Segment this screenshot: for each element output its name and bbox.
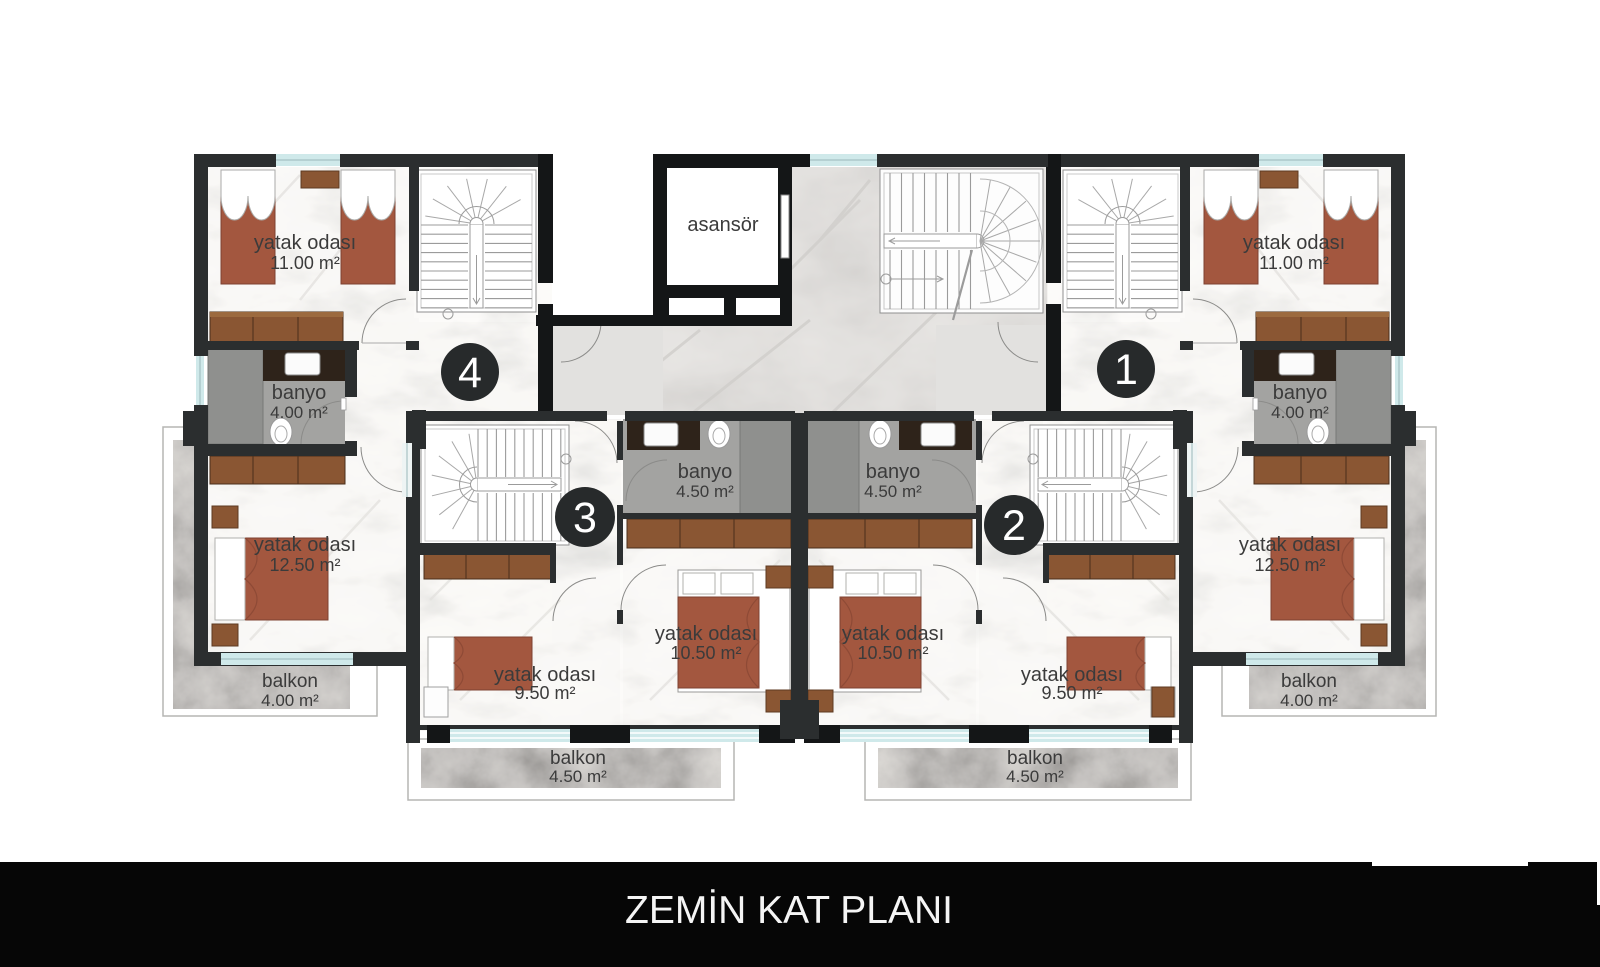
svg-text:10.50 m²: 10.50 m² <box>670 643 741 663</box>
svg-text:12.50 m²: 12.50 m² <box>269 555 340 575</box>
svg-text:4.50 m²: 4.50 m² <box>864 482 922 501</box>
svg-text:balkon: balkon <box>262 671 318 692</box>
svg-text:4.00 m²: 4.00 m² <box>270 403 328 422</box>
svg-text:balkon: balkon <box>1281 671 1337 692</box>
svg-text:banyo: banyo <box>678 461 733 483</box>
svg-text:yatak odası: yatak odası <box>842 623 944 645</box>
svg-text:9.50 m²: 9.50 m² <box>514 683 575 703</box>
svg-text:yatak odası: yatak odası <box>254 232 356 254</box>
svg-text:3: 3 <box>573 494 597 542</box>
svg-text:4: 4 <box>458 349 482 397</box>
svg-text:balkon: balkon <box>550 748 606 769</box>
svg-text:banyo: banyo <box>866 461 921 483</box>
svg-text:4.00 m²: 4.00 m² <box>1271 403 1329 422</box>
svg-text:11.00 m²: 11.00 m² <box>1259 253 1329 273</box>
svg-text:4.50 m²: 4.50 m² <box>549 767 607 786</box>
svg-text:11.00 m²: 11.00 m² <box>270 253 340 273</box>
svg-text:yatak odası: yatak odası <box>1239 534 1341 556</box>
svg-text:yatak odası: yatak odası <box>1243 232 1345 254</box>
svg-text:4.00 m²: 4.00 m² <box>1280 691 1338 710</box>
svg-text:banyo: banyo <box>272 382 327 404</box>
svg-text:12.50 m²: 12.50 m² <box>1254 555 1325 575</box>
svg-text:4.00 m²: 4.00 m² <box>261 691 319 710</box>
svg-text:2: 2 <box>1002 502 1026 550</box>
svg-text:yatak odası: yatak odası <box>254 534 356 556</box>
svg-text:balkon: balkon <box>1007 748 1063 769</box>
svg-text:10.50 m²: 10.50 m² <box>857 643 928 663</box>
svg-text:ZEMİN KAT PLANI: ZEMİN KAT PLANI <box>625 889 953 932</box>
svg-text:4.50 m²: 4.50 m² <box>1006 767 1064 786</box>
svg-text:asansör: asansör <box>687 214 758 236</box>
svg-text:4.50 m²: 4.50 m² <box>676 482 734 501</box>
svg-text:banyo: banyo <box>1273 382 1328 404</box>
svg-text:yatak odası: yatak odası <box>655 623 757 645</box>
svg-text:1: 1 <box>1114 346 1138 394</box>
svg-text:9.50 m²: 9.50 m² <box>1041 683 1102 703</box>
